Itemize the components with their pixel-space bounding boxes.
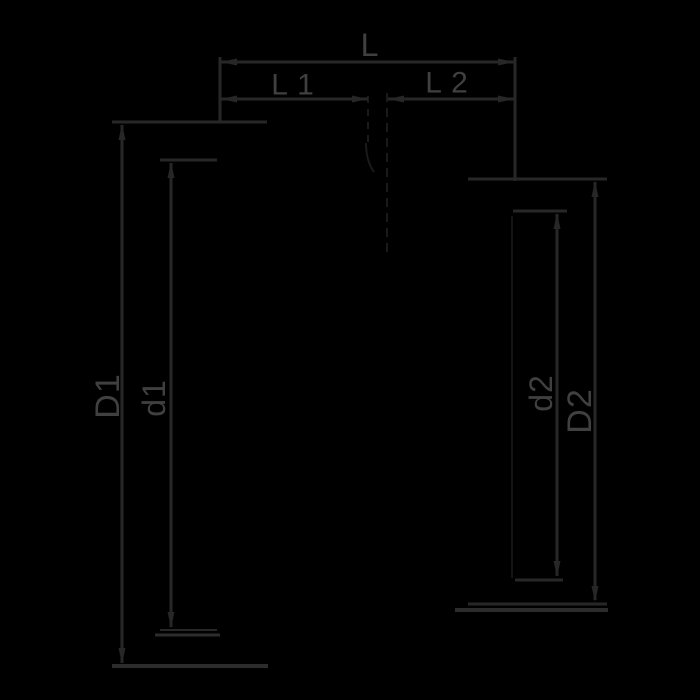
label-L: L bbox=[361, 27, 380, 63]
label-D2: D2 bbox=[561, 388, 599, 433]
label-D1: D1 bbox=[89, 373, 127, 418]
technical-drawing-canvas: LL 1L 2D1d1d2D2 bbox=[0, 0, 700, 700]
dimension-drawing-svg: LL 1L 2D1d1d2D2 bbox=[0, 0, 700, 700]
label-L2: L 2 bbox=[425, 67, 469, 100]
label-d2: d2 bbox=[523, 374, 559, 412]
label-d1: d1 bbox=[136, 379, 172, 417]
label-L1: L 1 bbox=[271, 69, 315, 102]
